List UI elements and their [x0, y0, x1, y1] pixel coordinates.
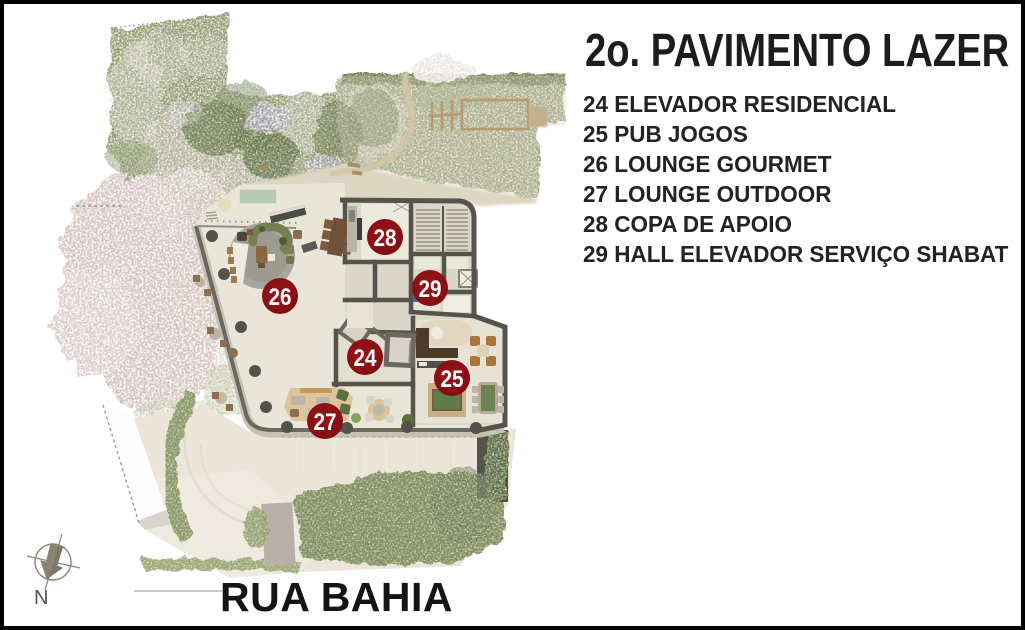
svg-text:25: 25	[441, 366, 464, 393]
svg-text:24: 24	[354, 345, 378, 372]
svg-text:27: 27	[314, 409, 337, 436]
svg-text:29: 29	[419, 276, 442, 303]
svg-text:26: 26	[269, 284, 292, 311]
svg-text:28: 28	[374, 225, 397, 252]
